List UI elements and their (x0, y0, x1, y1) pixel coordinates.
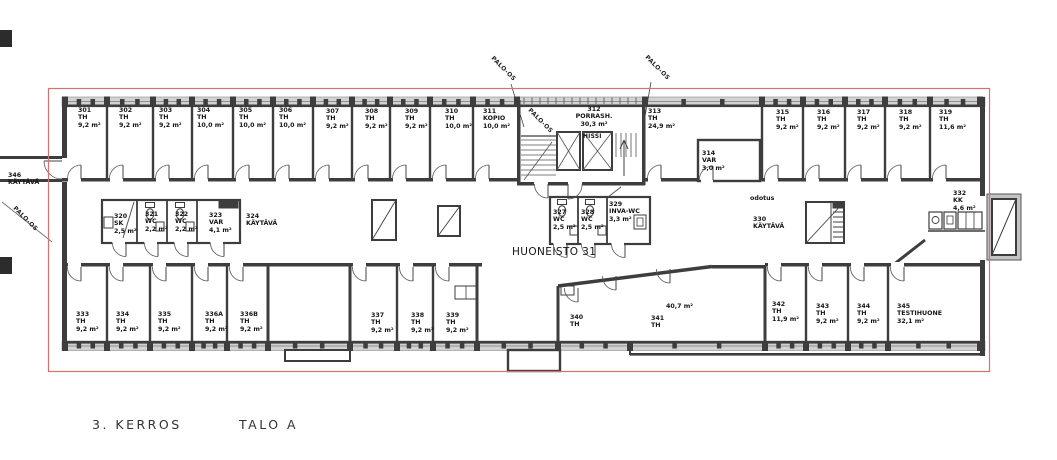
misc-fixtures (455, 286, 574, 299)
apartment-label: HUONEISTO 31 (512, 246, 596, 258)
caption-floor: 3. KERROS (92, 417, 182, 432)
room-label-341: 341TH (651, 315, 664, 330)
room-label-327: 327WC2,5 m² (553, 209, 576, 231)
room-label-321: 321WC2,2 m² (145, 211, 168, 233)
room-label-302: 302TH9,2 m² (119, 107, 142, 129)
room-label-318: 318TH9,2 m² (899, 109, 922, 131)
caption-building: TALO A (239, 417, 298, 432)
room-label-323: 323VAR4,1 m² (209, 212, 232, 234)
room-label-301: 301TH9,2 m² (78, 107, 101, 129)
room-label-309: 309TH9,2 m² (405, 108, 428, 130)
room-label-307: 307TH9,2 m² (326, 108, 349, 130)
room-label-334: 334TH9,2 m² (116, 311, 139, 333)
room-label-305: 305TH10,0 m² (239, 107, 266, 129)
room-label-337: 337TH9,2 m² (371, 312, 394, 334)
room-label-332: 332KK4,6 m² (953, 190, 976, 212)
room-label-317: 317TH9,2 m² (857, 109, 880, 131)
room-label-345: 345TESTIHUONE32,1 m² (897, 303, 942, 325)
room-label-335: 335TH9,2 m² (158, 311, 181, 333)
room-label-338: 338TH9,2 m² (411, 312, 434, 334)
room-label-333: 333TH9,2 m² (76, 311, 99, 333)
room-label-315: 315TH9,2 m² (776, 109, 799, 131)
room-label-330: 330KÄYTÄVÄ (753, 216, 784, 231)
room-label-342: 342TH11,9 m² (772, 301, 799, 323)
room-label-328: 328WC2,5 m² (581, 209, 604, 231)
room-label-322: 322WC2,2 m² (175, 211, 198, 233)
room-label-319: 319TH11,6 m² (939, 109, 966, 131)
open-area-label: 40,7 m² (666, 303, 693, 310)
room-label-311: 311KOPIO10,0 m² (483, 108, 510, 130)
room-label-343: 343TH9,2 m² (816, 303, 839, 325)
room-label-329: 329INVA-WC3,3 m² (609, 201, 640, 223)
shafts-mid (372, 200, 460, 240)
room-label-336a: 336ATH9,2 m² (205, 311, 228, 333)
kitchenette-332 (928, 212, 985, 231)
room-label-346: 346KÄYTÄVÄ (8, 172, 39, 187)
room-label-340: 340TH (570, 314, 583, 329)
room-label-306: 306TH10,0 m² (279, 107, 306, 129)
shaft-right (806, 202, 844, 243)
room-label-314: 314VAR3,0 m² (702, 150, 725, 172)
room-label-312: 312PORRASH.30,3 m² (571, 106, 617, 128)
room-label-344: 344TH9,2 m² (857, 303, 880, 325)
room-label-324: 324KÄYTÄVÄ (246, 213, 277, 228)
elevator-label: HISSI (583, 134, 602, 140)
room-label-339: 339TH9,2 m² (446, 312, 469, 334)
room-label-313: 313TH24,9 m² (648, 108, 675, 130)
room-label-310: 310TH10,0 m² (445, 108, 472, 130)
room-label-308: 308TH9,2 m² (365, 108, 388, 130)
floor-plan-drawing: 301TH9,2 m² 302TH9,2 m² 303TH9,2 m² 304T… (0, 0, 1057, 460)
balcony-right (987, 194, 1021, 260)
room-label-304: 304TH10,0 m² (197, 107, 224, 129)
room-label-336b: 336BTH9,2 m² (240, 311, 263, 333)
room-label-320: 320SK2,5 m² (114, 213, 137, 235)
room-label-303: 303TH9,2 m² (159, 107, 182, 129)
room-label-316: 316TH9,2 m² (817, 109, 840, 131)
stair-up-arrow (620, 140, 628, 176)
waiting-area-label: odotus (750, 195, 774, 202)
